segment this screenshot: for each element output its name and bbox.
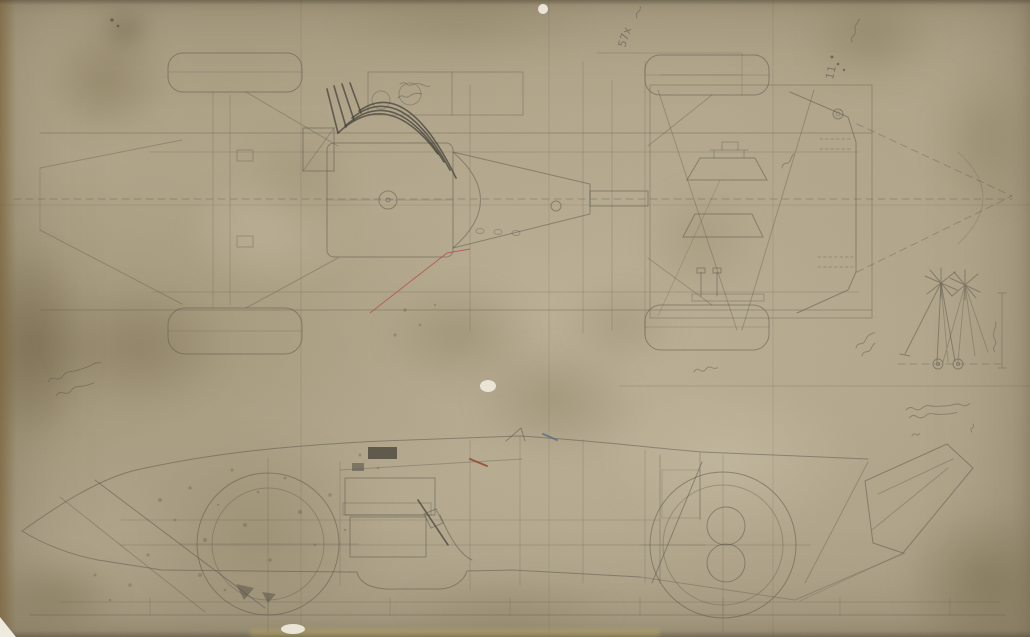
paper-grain-texture — [0, 0, 1030, 637]
backing-corner — [0, 617, 16, 637]
scanned-drawing-sheet: 57x 11 — [0, 0, 1030, 637]
drawing-canvas: 57x 11 — [0, 0, 1030, 637]
